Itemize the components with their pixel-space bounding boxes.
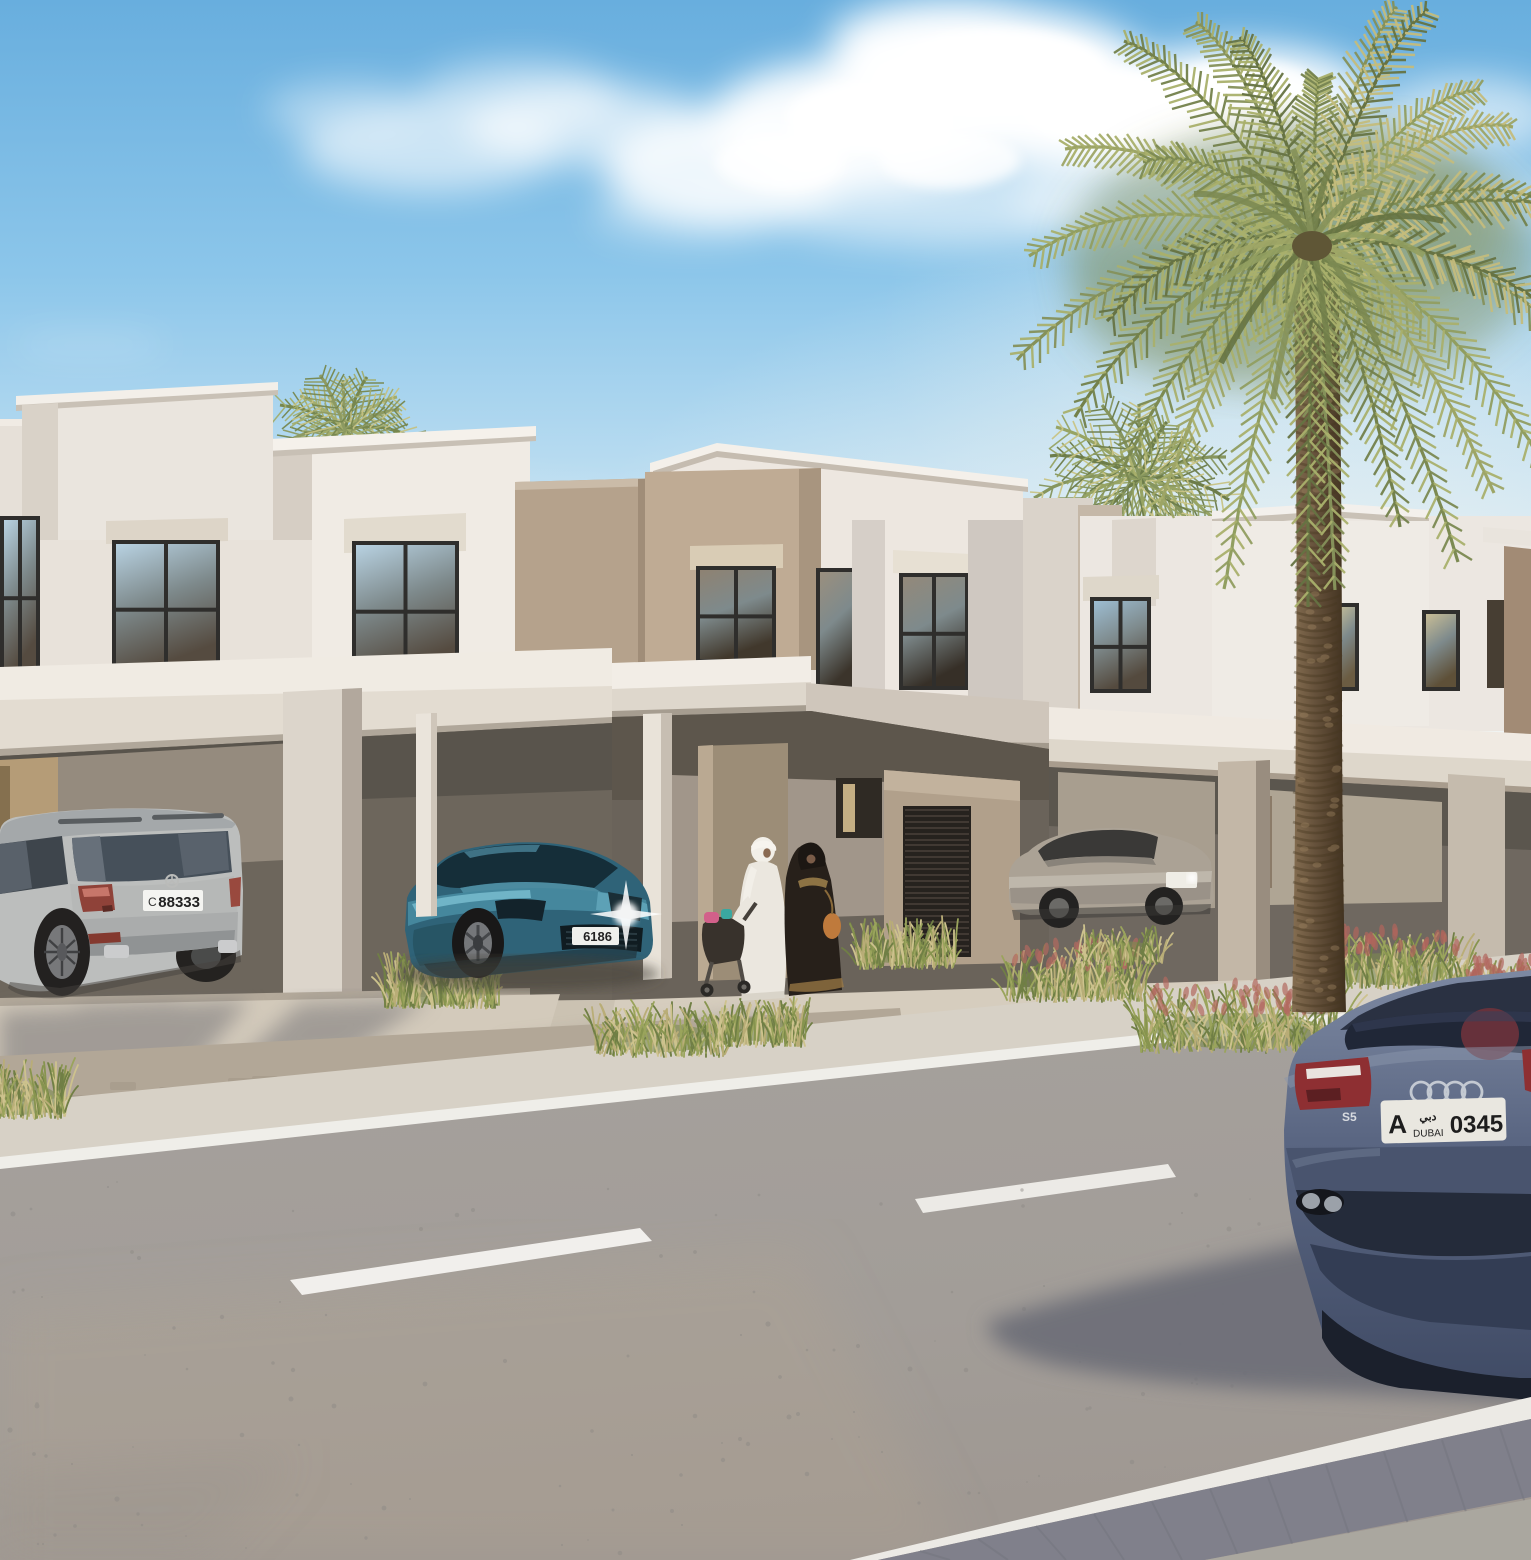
svg-text:0345: 0345 bbox=[1449, 1110, 1503, 1138]
svg-text:DUBAI: DUBAI bbox=[1413, 1128, 1444, 1140]
svg-text:A: A bbox=[1388, 1109, 1408, 1139]
svg-text:6186: 6186 bbox=[583, 929, 612, 944]
svg-text:C: C bbox=[148, 895, 157, 909]
svg-text:S5: S5 bbox=[1342, 1110, 1357, 1124]
svg-text:دبي: دبي bbox=[1419, 1111, 1437, 1124]
svg-text:88333: 88333 bbox=[158, 894, 200, 911]
